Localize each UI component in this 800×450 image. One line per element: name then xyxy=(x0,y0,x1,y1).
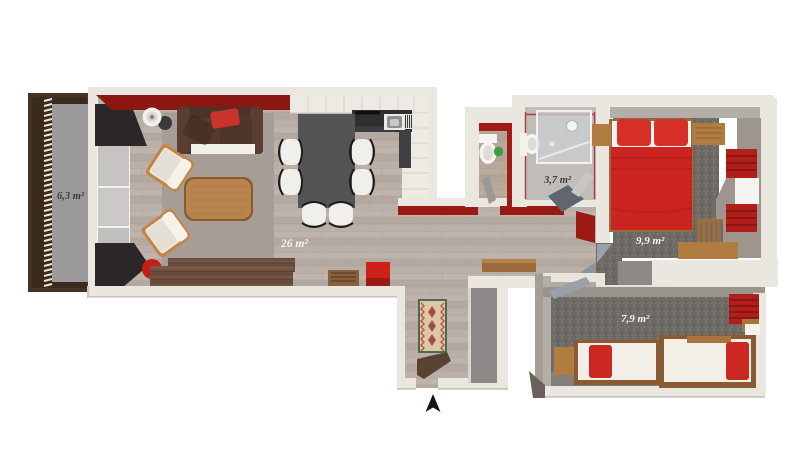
svg-text:26 m²: 26 m² xyxy=(280,238,308,250)
svg-text:3,7 m²: 3,7 m² xyxy=(543,175,572,186)
svg-text:7,9 m²: 7,9 m² xyxy=(621,313,650,325)
svg-text:9,9 m²: 9,9 m² xyxy=(636,235,665,247)
svg-text:6,3 m²: 6,3 m² xyxy=(57,191,85,202)
